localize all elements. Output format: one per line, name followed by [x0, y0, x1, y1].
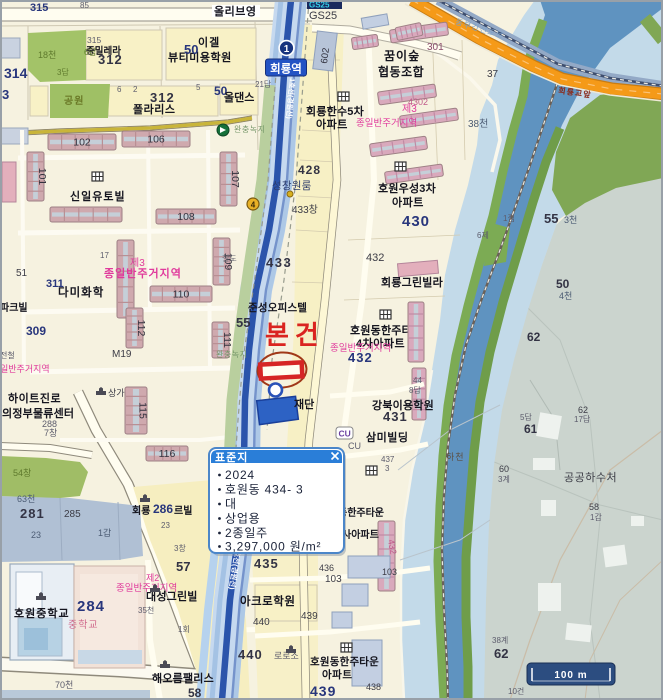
svg-text:하이트진로: 하이트진로: [8, 391, 61, 405]
svg-text:439: 439: [301, 611, 318, 622]
svg-text:6: 6: [117, 85, 122, 94]
svg-text:62: 62: [527, 330, 541, 344]
svg-text:2024: 2024: [225, 468, 255, 482]
svg-text:100 m: 100 m: [554, 670, 587, 681]
svg-text:협동조합: 협동조합: [378, 64, 424, 79]
svg-text:107: 107: [229, 170, 241, 188]
svg-text:55: 55: [544, 211, 558, 226]
svg-text:르빌: 르빌: [174, 504, 192, 517]
svg-text:62: 62: [578, 405, 588, 415]
svg-text:폴라리스: 폴라리스: [133, 102, 175, 116]
svg-text:432: 432: [348, 350, 373, 365]
svg-text:다미화학: 다미화학: [58, 285, 104, 299]
svg-text:115: 115: [137, 402, 149, 419]
svg-text:18천: 18천: [38, 50, 56, 60]
svg-text:51: 51: [16, 268, 28, 279]
svg-text:아파트: 아파트: [392, 195, 424, 209]
svg-text:1집: 1집: [503, 213, 515, 223]
svg-text:286: 286: [153, 502, 173, 516]
svg-text:312: 312: [150, 90, 175, 105]
svg-text:315: 315: [87, 35, 101, 45]
svg-text:21답: 21답: [255, 79, 272, 89]
svg-text:회룡역: 회룡역: [270, 62, 302, 76]
svg-text:호원중학교: 호원중학교: [14, 606, 70, 620]
svg-text:하천: 하천: [446, 452, 465, 462]
svg-text:중학교: 중학교: [68, 619, 99, 631]
svg-text:이겔: 이겔: [198, 35, 220, 49]
svg-text:호원동 434- 3: 호원동 434- 3: [225, 483, 303, 497]
svg-text:432: 432: [366, 252, 384, 264]
svg-text:38천: 38천: [468, 118, 488, 130]
svg-text:281: 281: [20, 506, 45, 521]
svg-text:1갑: 1갑: [98, 527, 111, 538]
svg-text:44: 44: [413, 376, 422, 385]
svg-text:뷰티미용학원: 뷰티미용학원: [168, 50, 232, 64]
svg-text:3계: 3계: [498, 474, 510, 484]
svg-text:70천: 70천: [55, 680, 73, 690]
svg-text:17: 17: [100, 251, 109, 260]
svg-text:5: 5: [196, 83, 201, 92]
svg-text:4302: 4302: [408, 97, 428, 107]
svg-text:완충녹지: 완충녹지: [234, 125, 265, 134]
svg-text:1: 1: [284, 44, 290, 55]
svg-text:55: 55: [236, 315, 250, 330]
svg-text:50: 50: [184, 42, 198, 57]
svg-text:의정부물류센터: 의정부물류센터: [2, 406, 74, 420]
svg-text:일반주거지역: 일반주거지역: [0, 364, 50, 374]
svg-text:440: 440: [253, 617, 270, 628]
svg-text:438: 438: [366, 682, 381, 692]
svg-text:102: 102: [73, 137, 91, 149]
svg-text:103: 103: [382, 567, 397, 577]
svg-text:430: 430: [402, 213, 430, 230]
svg-text:284: 284: [77, 598, 105, 615]
svg-text:4천: 4천: [559, 291, 572, 301]
svg-text:23: 23: [31, 530, 41, 540]
svg-text:3답: 3답: [57, 67, 69, 77]
svg-text:439: 439: [310, 683, 336, 699]
svg-text:5답: 5답: [520, 412, 532, 422]
svg-text:437: 437: [381, 455, 395, 464]
svg-text:공공하수처: 공공하수처: [564, 470, 617, 484]
svg-text:61: 61: [524, 422, 538, 436]
svg-text:37: 37: [487, 69, 499, 80]
svg-text:315: 315: [30, 2, 48, 14]
svg-text:올리브영: 올리브영: [214, 4, 256, 18]
svg-text:사아파트: 사아파트: [342, 528, 379, 541]
svg-text:440: 440: [238, 647, 263, 662]
svg-text:제3: 제3: [130, 257, 145, 269]
svg-text:GS25: GS25: [309, 10, 337, 22]
svg-text:올댄스: 올댄스: [224, 90, 254, 104]
svg-text:3,297,000 원/m²: 3,297,000 원/m²: [225, 540, 321, 554]
svg-text:호원동한주타운: 호원동한주타운: [310, 655, 379, 668]
svg-text:58: 58: [188, 686, 202, 700]
svg-text:상업용: 상업용: [225, 512, 261, 526]
svg-text:철도: 철도: [222, 253, 237, 263]
svg-text:54창: 54창: [13, 468, 31, 478]
svg-text:종일반주거지역: 종일반주거지역: [356, 118, 417, 129]
svg-text:38계: 38계: [492, 635, 508, 645]
svg-text:111: 111: [221, 332, 233, 348]
svg-text:3천: 3천: [564, 215, 577, 225]
svg-text:6답: 6답: [84, 47, 97, 57]
svg-text:대: 대: [225, 497, 237, 511]
svg-text:M19: M19: [112, 349, 132, 360]
svg-text:62: 62: [494, 646, 508, 661]
svg-text:60: 60: [499, 464, 509, 474]
svg-text:85: 85: [80, 1, 89, 10]
svg-text:완충녹지: 완충녹지: [216, 350, 247, 359]
svg-text:재단: 재단: [294, 397, 314, 411]
svg-text:전철: 전철: [0, 350, 15, 360]
svg-text:2종일주: 2종일주: [225, 526, 268, 540]
svg-text:285: 285: [64, 509, 81, 520]
svg-text:309: 309: [26, 324, 46, 338]
svg-text:10건: 10건: [508, 686, 524, 696]
svg-text:103: 103: [325, 574, 342, 585]
svg-text:101: 101: [36, 168, 48, 186]
svg-text:회룡그린빌라: 회룡그린빌라: [381, 275, 444, 289]
svg-text:35천: 35천: [138, 605, 154, 615]
svg-text:2: 2: [133, 85, 138, 94]
svg-text:회룡: 회룡: [132, 504, 150, 517]
svg-text:50: 50: [556, 277, 570, 291]
svg-text:아크로학원: 아크로학원: [240, 594, 295, 608]
svg-text:435: 435: [254, 556, 279, 571]
svg-text:110: 110: [173, 289, 190, 301]
svg-text:해오름팰리스: 해오름팰리스: [152, 671, 214, 685]
svg-text:63천: 63천: [17, 494, 35, 504]
svg-text:112: 112: [135, 320, 147, 337]
svg-text:311: 311: [46, 278, 64, 290]
svg-text:436: 436: [319, 563, 334, 573]
svg-text:4: 4: [251, 201, 256, 210]
svg-text:108: 108: [177, 211, 195, 223]
svg-text:신일유토빌: 신일유토빌: [70, 189, 126, 203]
svg-text:아파트: 아파트: [316, 117, 348, 131]
svg-text:제2: 제2: [146, 573, 159, 583]
svg-text:3창: 3창: [174, 544, 186, 553]
svg-text:17답: 17답: [574, 414, 591, 424]
svg-text:57: 57: [176, 559, 190, 574]
svg-text:회룡한수5차: 회룡한수5차: [306, 104, 365, 118]
svg-text:58: 58: [589, 502, 599, 512]
svg-text:433창: 433창: [292, 204, 318, 216]
svg-text:파크빌: 파크빌: [0, 301, 28, 314]
svg-text:1갑: 1갑: [590, 512, 602, 522]
svg-text:116: 116: [159, 448, 176, 460]
svg-text:꿈이숲: 꿈이숲: [384, 48, 420, 63]
svg-text:6제: 6제: [477, 231, 489, 240]
svg-text:7창: 7창: [44, 428, 57, 438]
svg-text:23: 23: [161, 521, 170, 530]
svg-text:8답: 8답: [409, 385, 421, 395]
svg-text:428: 428: [298, 163, 321, 177]
svg-text:314: 314: [4, 65, 28, 81]
svg-text:3: 3: [385, 464, 390, 473]
svg-text:1회: 1회: [178, 625, 190, 634]
svg-text:본건: 본건: [265, 320, 325, 350]
svg-text:3: 3: [2, 87, 9, 102]
svg-text:삼미빌딩: 삼미빌딩: [366, 430, 408, 444]
svg-text:106: 106: [147, 134, 165, 146]
svg-text:CU: CU: [339, 429, 351, 439]
svg-text:준성오피스텔: 준성오피스텔: [248, 301, 307, 314]
svg-text:602: 602: [319, 47, 332, 64]
svg-text:아파트: 아파트: [322, 668, 352, 681]
svg-text:공원: 공원: [64, 94, 84, 107]
svg-text:표준지: 표준지: [215, 450, 248, 464]
svg-text:호원우성3차: 호원우성3차: [378, 181, 437, 195]
svg-text:CU: CU: [348, 441, 361, 451]
svg-text:성창원룸: 성창원룸: [272, 180, 312, 192]
svg-text:431: 431: [383, 409, 408, 424]
svg-text:상가: 상가: [108, 388, 125, 398]
svg-text:301: 301: [427, 42, 444, 53]
svg-text:433: 433: [266, 255, 292, 270]
